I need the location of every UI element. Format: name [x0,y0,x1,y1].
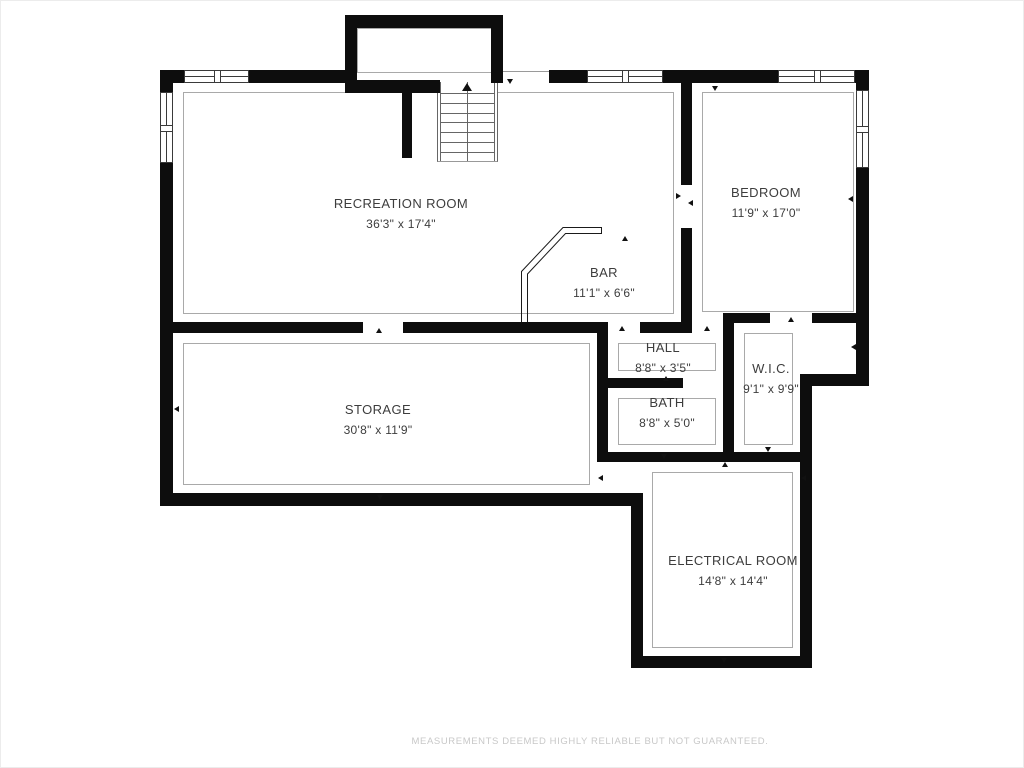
bar-counter [0,0,1024,768]
stair-side-wall [402,80,412,158]
dimension-marker [722,462,728,467]
storage-bottom-wall [160,493,643,506]
stairs-up-arrow-icon [462,83,472,91]
stair-center-line [467,82,468,161]
bedroom-partition-upper [681,83,692,185]
room-name: BEDROOM [731,182,801,203]
exterior-wall-top [549,70,587,83]
dimension-marker [848,196,853,202]
room-dimensions: 30'8" x 11'9" [344,420,413,441]
door-marker [619,326,625,331]
room-name: RECREATION ROOM [334,193,468,214]
hall-left-wall [597,322,608,462]
window [778,70,855,83]
room-dimensions: 9'1" x 9'9" [743,379,799,400]
exterior-wall-top [249,70,345,83]
room-label-recreation-room: RECREATION ROOM 36'3" x 17'4" [334,193,468,235]
floor-plan: RECREATION ROOM 36'3" x 17'4" BEDROOM 11… [0,0,1024,768]
room-label-bar: BAR 11'1" x 6'6" [573,262,635,304]
room-label-storage: STORAGE 30'8" x 11'9" [344,399,413,441]
room-dimensions: 11'9" x 17'0" [731,203,801,224]
door-marker [704,326,710,331]
room-name: BAR [573,262,635,283]
dimension-marker [765,447,771,452]
door-marker [507,79,513,84]
recreation-bottom-wall [403,322,607,333]
dimension-marker [174,406,179,412]
wic-top-wall [812,313,858,323]
bath-wic-divider [723,313,734,462]
window [856,90,869,168]
bumpout-top-wall [345,15,503,28]
wic-top-wall [723,313,770,323]
window [184,70,249,83]
room-dimensions: 14'8" x 14'4" [668,571,798,592]
room-label-electrical-room: ELECTRICAL ROOM 14'8" x 14'4" [668,550,798,592]
hall-bath-divider [597,378,683,388]
dimension-marker [377,495,383,500]
stair-opening-line [503,71,549,72]
room-label-bath: BATH 8'8" x 5'0" [639,392,695,434]
room-dimensions: 36'3" x 17'4" [334,214,468,235]
dimension-marker [622,236,628,241]
dimension-marker [661,454,667,459]
staircase [437,82,498,162]
door-marker [688,200,693,206]
dimension-marker [712,86,718,91]
room-name: STORAGE [344,399,413,420]
stair-rail-right [494,82,495,161]
door-marker [788,317,794,322]
exterior-wall-right [856,166,869,386]
room-name: ELECTRICAL ROOM [668,550,798,571]
room-dimensions: 8'8" x 3'5" [635,358,691,379]
room-name: BATH [639,392,695,413]
exterior-wall-left [160,163,173,506]
door-marker [598,475,603,481]
door-marker [376,328,382,333]
electrical-left-wall [631,493,643,668]
dimension-marker [851,344,856,350]
wall-under-bumpout [345,80,440,93]
bath-bottom-wall [597,452,812,462]
bedroom-partition-lower [681,228,692,333]
dimension-marker [721,658,727,663]
room-label-wic: W.I.C. 9'1" x 9'9" [743,358,799,400]
dimension-marker [801,475,806,481]
room-name: HALL [635,337,691,358]
window [587,70,663,83]
room-name: W.I.C. [743,358,799,379]
door-marker [676,193,681,199]
exterior-wall-right-lower [800,374,812,668]
room-label-bedroom: BEDROOM 11'9" x 17'0" [731,182,801,224]
exterior-wall-top [663,70,778,83]
room-label-hall: HALL 8'8" x 3'5" [635,337,691,379]
window [160,92,173,163]
room-dimensions: 11'1" x 6'6" [573,283,635,304]
disclaimer-text: MEASUREMENTS DEEMED HIGHLY RELIABLE BUT … [412,736,769,747]
recreation-bottom-wall [172,322,363,333]
room-dimensions: 8'8" x 5'0" [639,413,695,434]
hall-top-wall [640,322,681,333]
exterior-wall-right [856,70,869,90]
bumpout-right-wall [491,15,503,83]
exterior-wall-left [160,70,173,92]
